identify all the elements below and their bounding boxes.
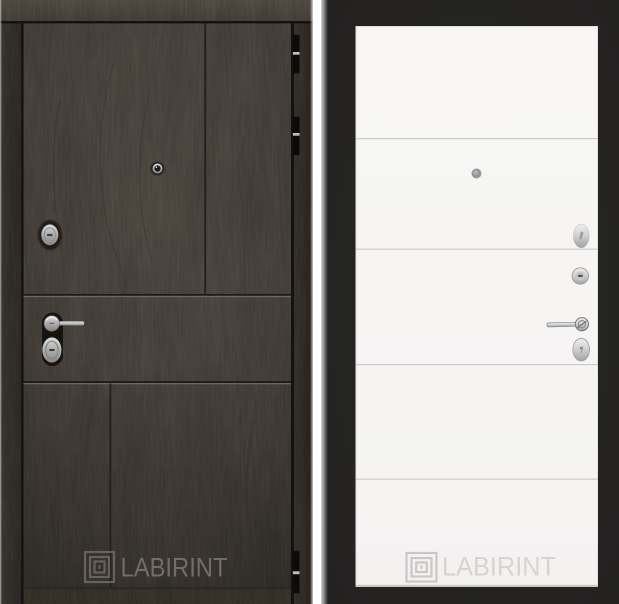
svg-text:LABIRINT: LABIRINT — [442, 552, 556, 582]
svg-text:LABIRINT: LABIRINT — [121, 553, 228, 583]
